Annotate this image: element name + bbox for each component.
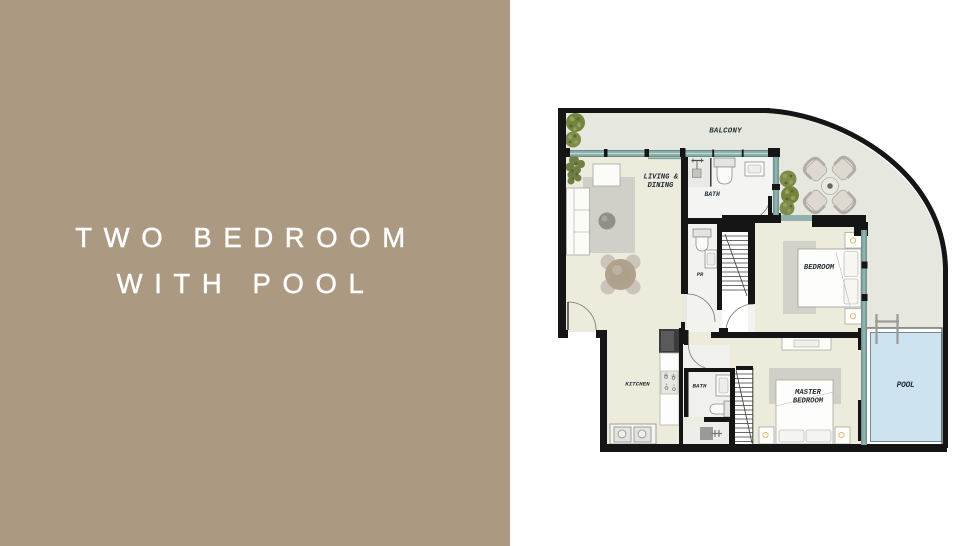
svg-text:BALCONY: BALCONY	[709, 127, 742, 135]
svg-text:BATH: BATH	[693, 383, 707, 390]
svg-text:POOL: POOL	[897, 382, 915, 390]
svg-text:BEDROOM: BEDROOM	[804, 264, 835, 272]
svg-text:DINING: DINING	[647, 182, 674, 190]
svg-text:BATH: BATH	[705, 191, 721, 198]
svg-text:BEDROOM: BEDROOM	[793, 398, 824, 406]
svg-text:PR: PR	[697, 272, 704, 278]
svg-text:LIVING &: LIVING &	[644, 173, 679, 181]
svg-text:MASTER: MASTER	[794, 389, 822, 397]
svg-text:KITCHEN: KITCHEN	[625, 381, 650, 388]
